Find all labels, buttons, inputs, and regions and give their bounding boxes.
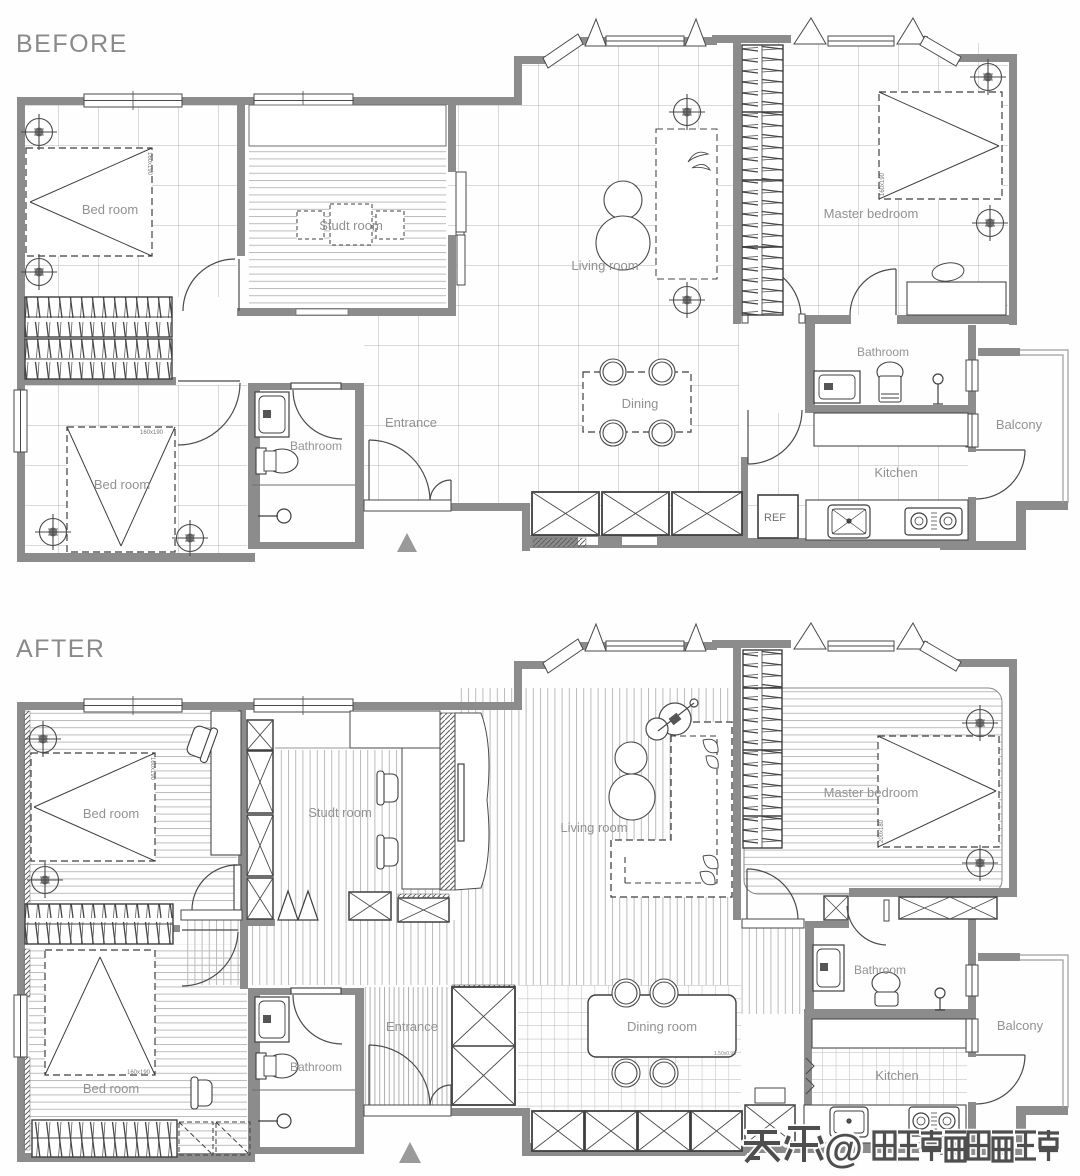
svg-text:Living room: Living room xyxy=(571,258,638,273)
svg-text:Bathroom: Bathroom xyxy=(857,345,909,359)
svg-text:Balcony: Balcony xyxy=(997,1018,1044,1033)
svg-text:Master bedroom: Master bedroom xyxy=(824,785,919,800)
svg-text:@: @ xyxy=(824,1127,863,1171)
svg-text:Studt room: Studt room xyxy=(319,218,383,233)
svg-text:160x190: 160x190 xyxy=(880,172,886,196)
svg-text:Dining: Dining xyxy=(622,396,659,411)
svg-text:Dining room: Dining room xyxy=(627,1019,697,1034)
svg-text:Kitchen: Kitchen xyxy=(874,465,917,480)
svg-text:Kitchen: Kitchen xyxy=(875,1068,918,1083)
svg-text:BEFORE: BEFORE xyxy=(16,30,128,58)
svg-text:Master bedroom: Master bedroom xyxy=(824,206,919,221)
svg-text:Bathroom: Bathroom xyxy=(290,1060,342,1074)
svg-text:AFTER: AFTER xyxy=(16,635,105,663)
svg-text:Entrance: Entrance xyxy=(385,415,437,430)
svg-text:160x190: 160x190 xyxy=(146,152,152,176)
svg-text:Bathroom: Bathroom xyxy=(290,439,342,453)
svg-text:160x190: 160x190 xyxy=(149,757,155,781)
svg-text:Entrance: Entrance xyxy=(386,1019,438,1034)
svg-text:Bed room: Bed room xyxy=(83,806,139,821)
svg-text:160x190: 160x190 xyxy=(127,1070,151,1076)
svg-text:Bed room: Bed room xyxy=(82,202,138,217)
svg-text:Bed room: Bed room xyxy=(94,477,150,492)
svg-text:Living room: Living room xyxy=(560,820,627,835)
svg-text:Bathroom: Bathroom xyxy=(854,963,906,977)
svg-text:Bed room: Bed room xyxy=(83,1081,139,1096)
svg-text:Studt room: Studt room xyxy=(308,805,372,820)
svg-text:Balcony: Balcony xyxy=(996,417,1043,432)
svg-text:160x190: 160x190 xyxy=(140,430,164,436)
svg-text:200x180: 200x180 xyxy=(879,819,885,843)
svg-text:REF: REF xyxy=(764,512,786,524)
svg-text:1.50x0.90: 1.50x0.90 xyxy=(714,1051,736,1057)
